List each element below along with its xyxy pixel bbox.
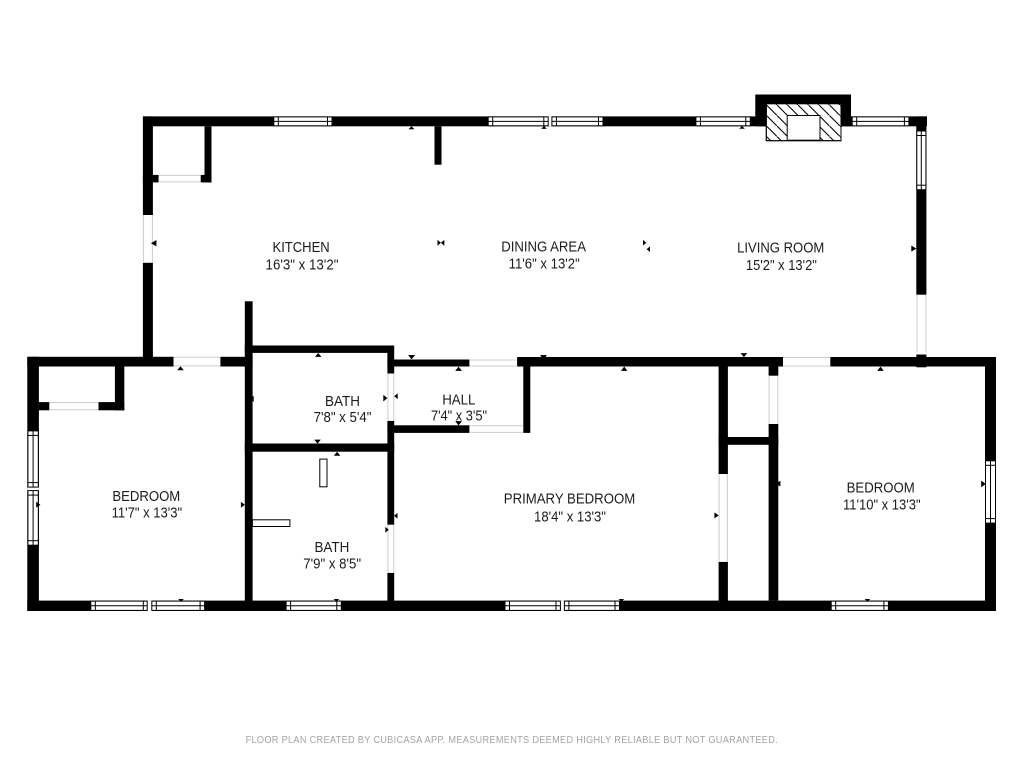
svg-text:7'8" x 5'4": 7'8" x 5'4" — [314, 410, 372, 426]
svg-text:FLOOR PLAN CREATED BY CUBICASA: FLOOR PLAN CREATED BY CUBICASA APP. MEAS… — [246, 734, 778, 746]
svg-text:BEDROOM: BEDROOM — [112, 489, 180, 505]
svg-text:KITCHEN: KITCHEN — [273, 240, 330, 256]
svg-text:BATH: BATH — [314, 540, 349, 556]
svg-text:BEDROOM: BEDROOM — [847, 481, 915, 497]
svg-text:16'3" x 13'2": 16'3" x 13'2" — [266, 258, 339, 274]
svg-text:15'2" x 13'2": 15'2" x 13'2" — [746, 258, 817, 274]
svg-text:11'10" x 13'3": 11'10" x 13'3" — [843, 498, 921, 514]
svg-text:11'7" x 13'3": 11'7" x 13'3" — [112, 506, 183, 522]
svg-text:11'6" x 13'2": 11'6" x 13'2" — [509, 257, 580, 273]
svg-text:LIVING ROOM: LIVING ROOM — [737, 241, 824, 257]
svg-text:DINING AREA: DINING AREA — [501, 240, 586, 256]
svg-text:BATH: BATH — [325, 394, 360, 410]
svg-text:7'4" x 3'5": 7'4" x 3'5" — [431, 409, 487, 425]
svg-text:7'9" x 8'5": 7'9" x 8'5" — [303, 557, 361, 573]
svg-text:18'4" x 13'3": 18'4" x 13'3" — [534, 510, 606, 526]
svg-text:HALL: HALL — [442, 393, 475, 409]
svg-text:PRIMARY BEDROOM: PRIMARY BEDROOM — [504, 492, 635, 508]
